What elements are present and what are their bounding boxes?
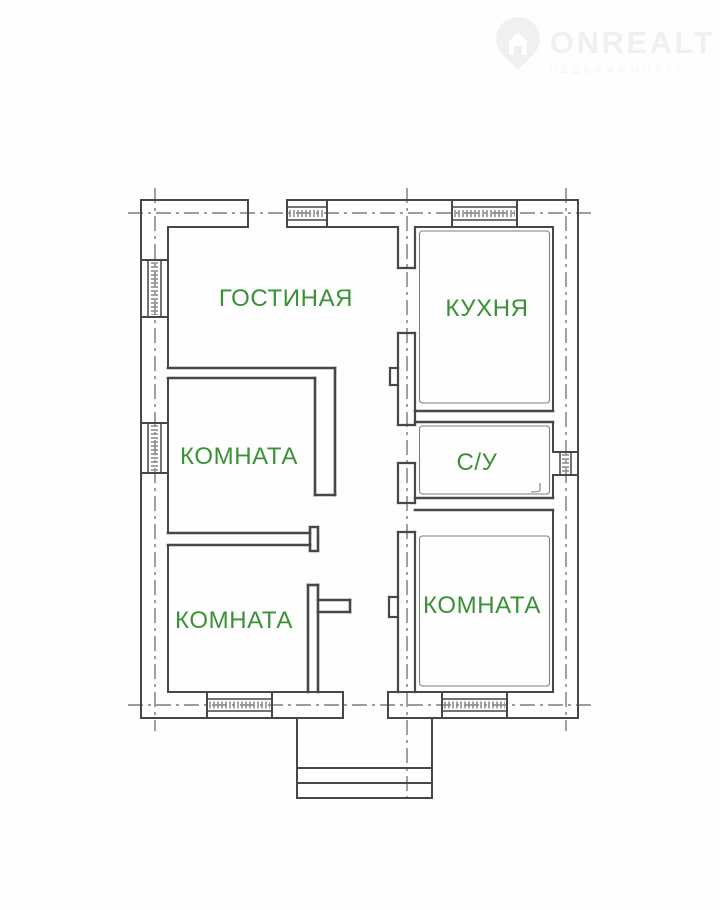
axis-centerlines	[128, 188, 592, 803]
room-label-room-bottom-left: КОМНАТА	[175, 607, 293, 635]
room-label-kitchen: КУХНЯ	[445, 295, 528, 323]
floorplan-scan: ONREALT НЕДВИЖИМОСТЬ	[0, 0, 720, 910]
central-wall	[389, 227, 415, 692]
room-label-room-middle-left: КОМНАТА	[180, 443, 298, 471]
floor-plan-drawing	[0, 0, 720, 910]
room-label-bathroom: С/У	[456, 449, 497, 477]
interior-partitions	[168, 368, 553, 692]
room-label-room-bottom-right: КОМНАТА	[423, 592, 541, 620]
porch-steps	[297, 718, 432, 798]
room-label-living-room: ГОСТИНАЯ	[219, 285, 353, 313]
